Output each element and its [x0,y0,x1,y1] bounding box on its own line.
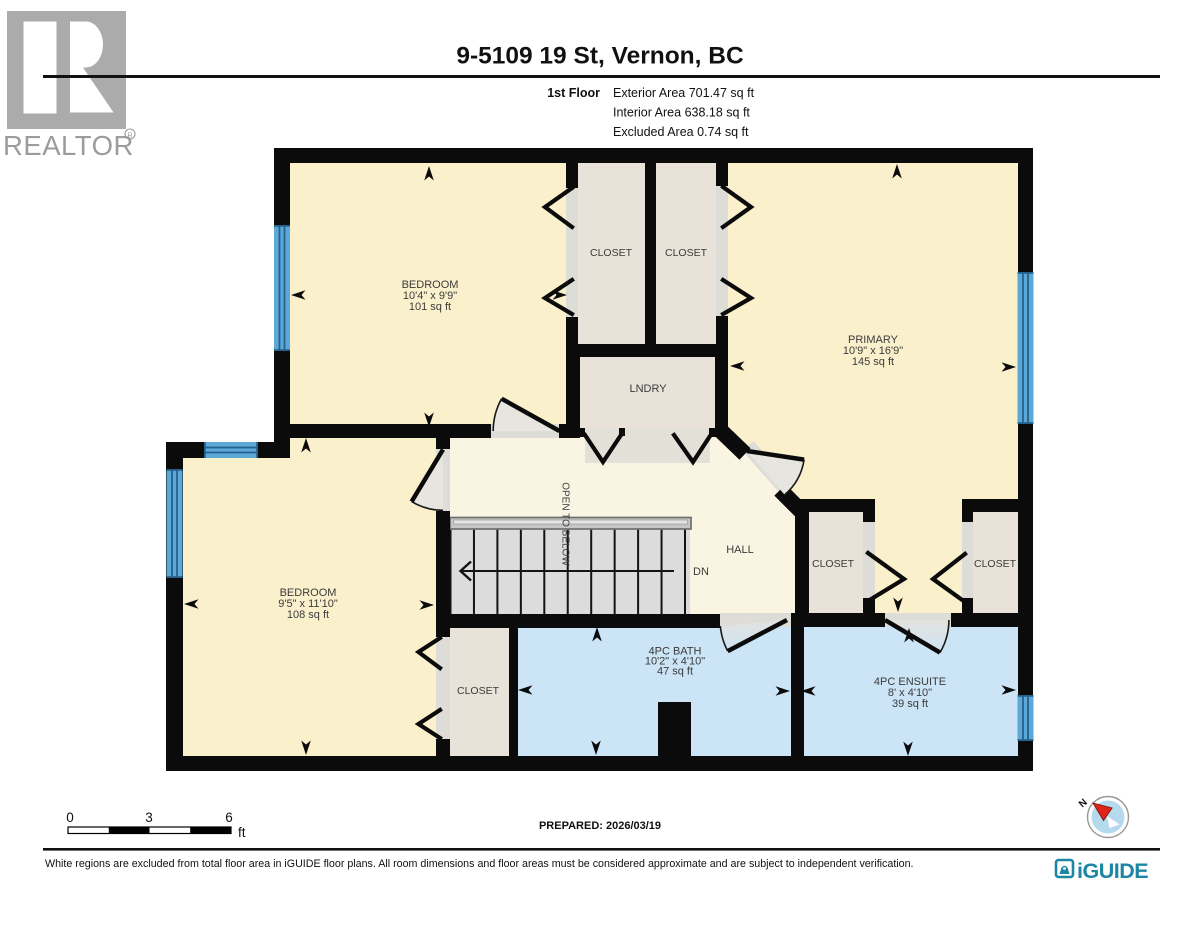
svg-text:OPEN TO BELOW: OPEN TO BELOW [560,482,571,566]
svg-text:DN: DN [693,566,709,578]
svg-text:LNDRY: LNDRY [629,383,667,395]
svg-text:Interior Area 638.18 sq ft: Interior Area 638.18 sq ft [613,106,750,120]
svg-text:CLOSET: CLOSET [974,558,1017,570]
svg-text:HALL: HALL [726,544,754,556]
svg-text:47 sq ft: 47 sq ft [657,666,693,678]
svg-text:108 sq ft: 108 sq ft [287,609,329,621]
svg-text:PREPARED: 2026/03/19: PREPARED: 2026/03/19 [539,820,661,832]
svg-text:3: 3 [145,810,153,825]
svg-text:6: 6 [225,810,233,825]
svg-text:39 sq ft: 39 sq ft [892,698,928,710]
svg-text:REALTOR: REALTOR [3,130,134,161]
svg-text:N: N [1077,797,1090,810]
svg-text:145 sq ft: 145 sq ft [852,356,894,368]
svg-text:101 sq ft: 101 sq ft [409,301,451,313]
svg-text:iGUIDE: iGUIDE [1077,859,1148,883]
svg-text:1st Floor: 1st Floor [547,86,600,100]
svg-text:CLOSET: CLOSET [812,558,855,570]
svg-text:CLOSET: CLOSET [590,247,633,259]
svg-text:Excluded Area 0.74 sq ft: Excluded Area 0.74 sq ft [613,125,749,139]
svg-text:9-5109 19 St, Vernon, BC: 9-5109 19 St, Vernon, BC [456,43,744,70]
svg-text:CLOSET: CLOSET [457,685,500,697]
svg-text:ft: ft [238,825,246,840]
svg-text:Exterior Area 701.47 sq ft: Exterior Area 701.47 sq ft [613,86,755,100]
svg-text:0: 0 [66,810,74,825]
svg-text:R: R [127,133,132,140]
svg-text:CLOSET: CLOSET [665,247,708,259]
svg-text:White regions are excluded fro: White regions are excluded from total fl… [45,858,914,870]
